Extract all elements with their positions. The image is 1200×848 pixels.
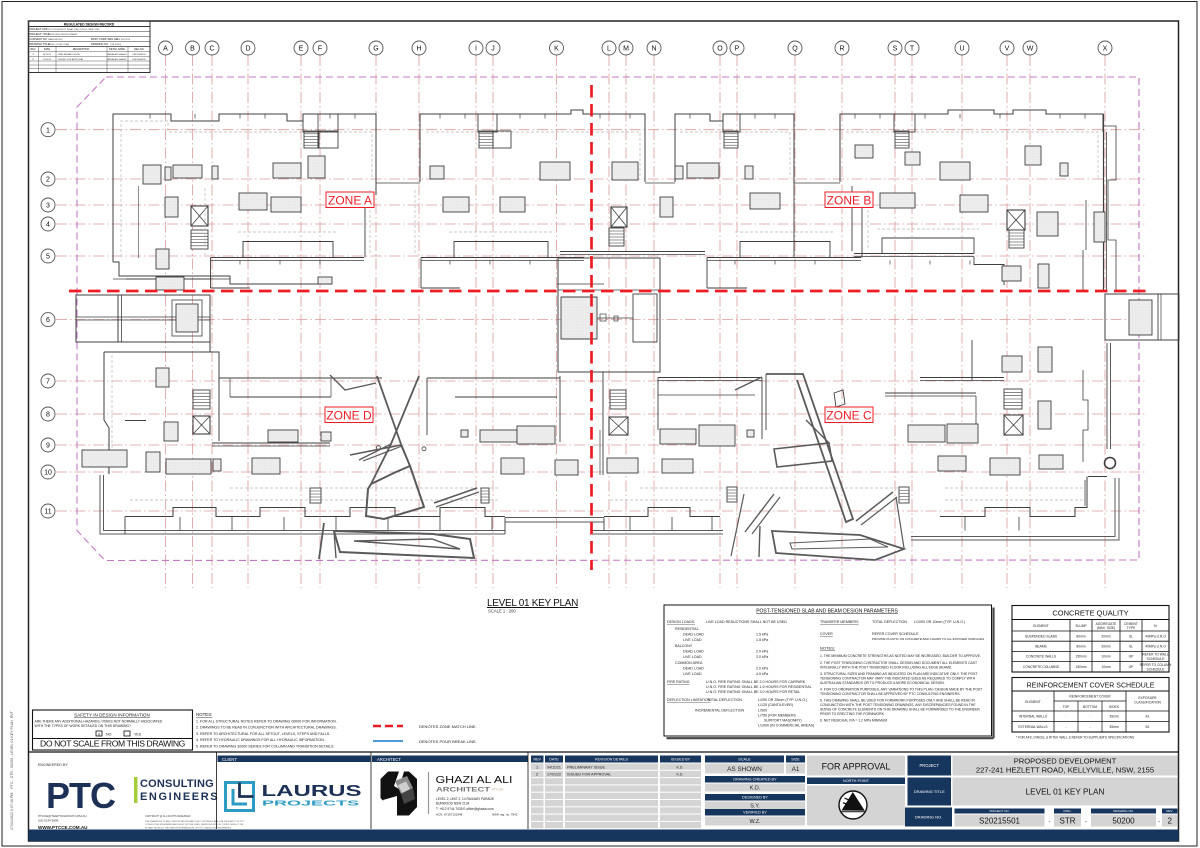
svg-text:LIVE LOAD: LIVE LOAD (683, 672, 702, 676)
svg-text:3. STRUCTURAL SIZES AND FRAMIN: 3. STRUCTURAL SIZES AND FRAMING AS INDIC… (820, 672, 977, 676)
svg-text:INCREMENTAL DEFLECTION: INCREMENTAL DEFLECTION (695, 709, 745, 713)
svg-text:LIVE LOAD REDUCTIONS SHALL NOT: LIVE LOAD REDUCTIONS SHALL NOT BE USED (706, 620, 787, 624)
svg-text:REINFORCEMENT COVER SCHEDULE: REINFORCEMENT COVER SCHEDULE (1027, 683, 1155, 690)
svg-text:SL: SL (1129, 645, 1133, 649)
svg-text:4. FOR CO-ORDINATION PURPOSES,: 4. FOR CO-ORDINATION PURPOSES, ANY VARIA… (820, 688, 982, 692)
svg-text:SAFETY IN DESIGN INFORMATION: SAFETY IN DESIGN INFORMATION (74, 713, 150, 718)
svg-text:SIZING OF CONCRETE ELEMENTS ON: SIZING OF CONCRETE ELEMENTS ON THIS DRAW… (820, 708, 980, 712)
svg-text:3: 3 (46, 203, 50, 210)
svg-text:DESIGNED BY: DESIGNED BY (742, 796, 768, 800)
svg-text:(MAX. SIZE): (MAX. SIZE) (1097, 626, 1116, 630)
svg-text:4.0 kPa: 4.0 kPa (756, 672, 768, 676)
svg-text:L/500: L/500 (758, 709, 767, 713)
svg-text:NORTH POINT: NORTH POINT (843, 779, 870, 783)
svg-text:150mm: 150mm (1076, 655, 1087, 659)
svg-text:T. +612 9744 7035 E.offic: T. +612 9744 7035 E.office@ghazia.com (436, 807, 494, 811)
svg-text:150mm: 150mm (1076, 665, 1087, 669)
svg-text:SCALE: SCALE (738, 757, 751, 761)
svg-text:A: A (163, 46, 168, 53)
svg-text:(02) 9134 9699: (02) 9134 9699 (38, 819, 59, 823)
svg-text:S20215501: S20215501 (979, 817, 1020, 826)
svg-text:ZONE B: ZONE B (827, 193, 872, 207)
svg-text:PRIOR TO ERECTING THE FORMWORK: PRIOR TO ERECTING THE FORMWORK. (820, 712, 885, 716)
svg-text:L/1000 OR 10mm (TYP. U.N.O.): L/1000 OR 10mm (TYP. U.N.O.) (914, 620, 965, 624)
svg-text:U.N.O. FIRE RATING SHALL BE 3.: U.N.O. FIRE RATING SHALL BE 3.0 HOURS FO… (706, 690, 800, 694)
svg-text:7: 7 (46, 379, 50, 386)
svg-text:DEAD LOAD: DEAD LOAD (683, 650, 704, 654)
svg-text:-: - (1065, 715, 1066, 719)
svg-text:A1: A1 (792, 766, 800, 773)
svg-text:L: L (607, 46, 611, 53)
svg-text:* FOR AFS, DINCEL & RITEK WALL: * FOR AFS, DINCEL & RITEK WALL S REFER T… (1016, 736, 1134, 740)
svg-text:5: 5 (46, 254, 50, 261)
svg-text:LAURUS: LAURUS (262, 783, 362, 800)
svg-text:LEVEL 2, UNIT 2, 14 RAILWAY PA: LEVEL 2, UNIT 2, 14 RAILWAY PARADE (436, 797, 494, 801)
svg-text:CONSULTING: CONSULTING (140, 778, 214, 790)
svg-text:-: - (1085, 820, 1087, 826)
svg-text:ARE THERE ANY ADDITIONAL HAZAR: ARE THERE ANY ADDITIONAL HAZARDS / RISKS… (35, 720, 163, 724)
svg-text:NOTES:: NOTES: (196, 712, 212, 717)
svg-text:ISSUED FOR APPROVAL: ISSUED FOR APPROVAL (567, 773, 611, 777)
svg-text:S: S (893, 46, 898, 53)
svg-text:SEP 202 9273: SEP 202 9273 (116, 39, 131, 41)
svg-text:NSW reg. no. 7542: NSW reg. no. 7542 (492, 813, 518, 817)
svg-text:PROPOSED DEVELOPMENT: PROPOSED DEVELOPMENT (48, 34, 78, 36)
svg-text:COPYRIGHT @ ALL RIGHTS RESERVE: COPYRIGHT @ ALL RIGHTS RESERVED (145, 815, 191, 818)
svg-text:W.Z.: W.Z. (749, 819, 760, 825)
svg-text:DESIGN LOADS:: DESIGN LOADS: (667, 620, 695, 624)
svg-text:BEAMS: BEAMS (1035, 645, 1047, 649)
svg-text:G: G (373, 46, 378, 53)
svg-text:B1: B1 (1145, 725, 1149, 729)
svg-text:8: 8 (46, 412, 50, 419)
svg-text:DEFLECTION LIMITATION: DEFLECTION LIMITATION (667, 698, 711, 702)
svg-text:FIRE RATING: FIRE RATING (667, 680, 690, 684)
svg-text:ARCHITECT: ARCHITECT (377, 757, 401, 762)
svg-text:STR 50200: STR 50200 (110, 44, 122, 46)
svg-text:DATE: DATE (549, 757, 559, 761)
svg-text:STR: STR (1060, 817, 1076, 826)
svg-text:REV.: REV. (1166, 809, 1173, 813)
svg-text:TOTAL DEFLECTION: TOTAL DEFLECTION (707, 698, 742, 702)
svg-text:1: 1 (46, 127, 50, 134)
svg-text:DRAWING CREATED BY: DRAWING CREATED BY (733, 778, 777, 782)
svg-text:DRAWING TITLE: DRAWING TITLE (30, 42, 50, 46)
svg-text:2.0 kPa: 2.0 kPa (756, 655, 768, 659)
svg-text:L/750 (FOR MEMBERS: L/750 (FOR MEMBERS (758, 714, 797, 718)
svg-text:ZONE A: ZONE A (328, 193, 372, 207)
svg-text:PROVIDE PLASTIC OR CONCRETE BA: PROVIDE PLASTIC OR CONCRETE BAR CHAIRS T… (872, 637, 984, 641)
svg-text:WWW.PTCCE.COM.AU: WWW.PTCCE.COM.AU (38, 825, 88, 830)
svg-text:PROJECT ADD: PROJECT ADD (30, 27, 48, 31)
svg-text:3. REFER TO ARCHITECTURAL F: 3. REFER TO ARCHITECTURAL FOR ALL SETOUT… (196, 732, 330, 736)
svg-text:6: 6 (46, 317, 50, 324)
svg-text:2: 2 (536, 773, 538, 777)
svg-text:ZONE C: ZONE C (826, 408, 872, 422)
svg-text:DO NOT SCALE FROM THIS DRAWING: DO NOT SCALE FROM THIS DRAWING (40, 739, 186, 749)
svg-text:NO: NO (106, 732, 112, 736)
svg-text:Q: Q (792, 46, 798, 53)
svg-text:4. REFER TO HYDRAULIC DRAWI: 4. REFER TO HYDRAULIC DRAWINGS FOR ALL H… (196, 738, 325, 742)
svg-text:O: O (717, 46, 723, 53)
svg-text:SL: SL (1129, 634, 1133, 638)
svg-text:U.N.O. FIRE RATING SHALL BE 2.: U.N.O. FIRE RATING SHALL BE 2.0 HOURS FO… (706, 680, 806, 684)
svg-text:P: P (735, 46, 740, 53)
svg-text:INTEGRALLY WITH THE POST TENSI: INTEGRALLY WITH THE POST TENSIONED FLOOR… (820, 666, 952, 670)
svg-text:227-241 HEZLETT ROAD, KELLYVIL: 227-241 HEZLETT ROAD, KELLYVILLE, NSW, 2… (976, 766, 1154, 775)
svg-text:THE DRAWINGS, PLANS, SPECIFICA: THE DRAWINGS, PLANS, SPECIFICATIONS AND … (145, 820, 245, 823)
svg-text:ENGINEERED BY:: ENGINEERED BY: (38, 763, 68, 767)
svg-text:SUPPORT MASONRY): SUPPORT MASONRY) (764, 719, 802, 723)
svg-text:W: W (1027, 46, 1034, 53)
svg-text:40MPa U.N.O: 40MPa U.N.O (1145, 634, 1166, 638)
svg-text:ISSUED FOR APPROVAL: ISSUED FOR APPROVAL (58, 58, 84, 61)
svg-text:2: 2 (46, 177, 50, 184)
svg-text:EXPOSURE: EXPOSURE (1138, 696, 1157, 700)
svg-text:REFER COVER SCHEDULE: REFER COVER SCHEDULE (872, 632, 919, 636)
svg-text:10mm: 10mm (1101, 665, 1110, 669)
svg-text:E: E (299, 46, 304, 53)
svg-text:CONJUNCTION WITH THE POST TENS: CONJUNCTION WITH THE POST TENSIONING DRA… (820, 703, 976, 707)
svg-text:REVISION DETAILS: REVISION DETAILS (595, 757, 628, 761)
svg-text:DEP0008304: DEP0008304 (132, 54, 146, 56)
svg-text:CONSULTING ENGINEERS AND MUST: CONSULTING ENGINEERS AND MUST NOT BE USE… (145, 823, 244, 826)
svg-text:PROPOSED DEVELOPMENT: PROPOSED DEVELOPMENT (1014, 757, 1117, 766)
svg-text:SIDES: SIDES (1109, 705, 1120, 709)
svg-text:DA91829/13JP: DA91829/13JP (48, 38, 63, 41)
svg-text:LIVE LOAD: LIVE LOAD (683, 638, 702, 642)
svg-text:35mm: 35mm (1109, 725, 1118, 729)
svg-text:-: - (1065, 725, 1066, 729)
svg-text:L/250 OR 25mm (TYP. U.N.O.): L/250 OR 25mm (TYP. U.N.O.) (758, 698, 807, 702)
svg-text:LEVEL 01 KEY PLAN: LEVEL 01 KEY PLAN (487, 598, 578, 609)
svg-text:AS SHOWN: AS SHOWN (727, 766, 762, 773)
svg-text:4: 4 (46, 222, 50, 229)
svg-text:ARCHITECT: ARCHITECT (436, 787, 490, 794)
svg-text:2.0 kPa: 2.0 kPa (756, 650, 768, 654)
svg-text:K.D.: K.D. (677, 765, 684, 769)
svg-text:CONCRETE QUALITY: CONCRETE QUALITY (1052, 609, 1128, 618)
svg-text:RESIDENTIAL: RESIDENTIAL (675, 627, 699, 631)
svg-text:ELEMENT: ELEMENT (1025, 700, 1041, 704)
svg-text:YES: YES (134, 732, 142, 736)
svg-text:1.5 kPa: 1.5 kPa (756, 638, 768, 642)
svg-text:DEAD LOAD: DEAD LOAD (683, 633, 704, 637)
svg-text:CLASSIFICATION: CLASSIFICATION (1134, 701, 1161, 705)
svg-text:PRELIMINARY ISSUE: PRELIMINARY ISSUE (567, 765, 606, 769)
svg-text:M: M (623, 46, 629, 53)
svg-text:DESCRIPTION: DESCRIPTION (73, 48, 90, 51)
svg-text:PROJECT: PROJECT (919, 763, 939, 768)
svg-text:DRAWING NO.: DRAWING NO. (915, 814, 942, 819)
svg-text:04/11/21: 04/11/21 (43, 54, 52, 56)
svg-text:REV: REV (534, 757, 542, 761)
svg-text:227-241 HEZLETT ROAD, KELLYVIL: 227-241 HEZLETT ROAD, KELLYVILLE, NSW, 2… (48, 28, 100, 31)
svg-text:SLUMP: SLUMP (1075, 624, 1087, 628)
svg-text:BODY CORP. REG NO: BODY CORP. REG NO (91, 37, 118, 41)
svg-text:5. THIS DRAWING SHALL BE USED: 5. THIS DRAWING SHALL BE USED FOR FORMWO… (820, 699, 975, 703)
svg-text:K.D.: K.D. (750, 786, 760, 792)
svg-text:2. THE POST TENSIONING CONTRAC: 2. THE POST TENSIONING CONTRACTOR SHALL … (820, 661, 977, 665)
svg-text:TYPE: TYPE (1127, 626, 1136, 630)
svg-text:GP: GP (1129, 665, 1135, 669)
svg-text:D: D (245, 46, 250, 53)
svg-text:TENSIONING CONTRACTOR MAY VARY: TENSIONING CONTRACTOR MAY VARY THE INDIC… (820, 677, 976, 681)
svg-text:TOTAL DEFLECTION: TOTAL DEFLECTION (872, 620, 907, 624)
svg-text:N: N (651, 46, 656, 53)
svg-text:DEP0008304: DEP0008304 (132, 59, 146, 61)
svg-text:C: C (209, 46, 214, 53)
svg-text:ELEMENT: ELEMENT (1033, 624, 1049, 628)
svg-text:PROJECT NO.: PROJECT NO. (989, 809, 1009, 813)
svg-text:REV: REV (31, 48, 36, 51)
svg-text:REINFORCEMENT COVER: REINFORCEMENT COVER (1069, 695, 1111, 699)
svg-text:X: X (1103, 46, 1108, 53)
svg-text:40MPa U.N.O: 40MPa U.N.O (1145, 645, 1166, 649)
svg-text:NOTES:: NOTES: (820, 646, 835, 651)
svg-text:T: T (910, 46, 915, 53)
svg-text:DISC.: DISC. (1063, 809, 1071, 813)
svg-text:80mm: 80mm (1076, 634, 1085, 638)
svg-text:-: - (1089, 715, 1090, 719)
svg-text:INTERNAL WALLS: INTERNAL WALLS (1019, 715, 1048, 719)
svg-text:80mm: 80mm (1076, 645, 1085, 649)
svg-text:CONCRETE COLUMNS: CONCRETE COLUMNS (1023, 665, 1060, 669)
svg-text:PROJECTS: PROJECTS (262, 801, 360, 808)
svg-text:-: - (1158, 820, 1160, 826)
svg-text:COMMON AREA: COMMON AREA (675, 661, 703, 665)
svg-text:F: F (318, 46, 322, 53)
svg-text:ENGINEERS: ENGINEERS (140, 791, 219, 803)
svg-text:H: H (416, 46, 421, 53)
svg-text:1: 1 (536, 765, 538, 769)
svg-text:1. FOR ALL STRUCTURAL NOTES: 1. FOR ALL STRUCTURAL NOTES REFER TO DRA… (196, 720, 337, 724)
svg-text:SUSPENDED SLABS: SUSPENDED SLABS (1025, 634, 1058, 638)
svg-text:ARSALAN SHAHID: ARSALAN SHAHID (107, 53, 127, 56)
svg-text:FOR APPROVAL: FOR APPROVAL (822, 762, 891, 772)
svg-text:TRANSFER MEMBERS: TRANSFER MEMBERS (820, 620, 859, 624)
svg-text:BALCONY: BALCONY (675, 644, 693, 648)
svg-text:DENOTES ZONE MATCH LINE.: DENOTES ZONE MATCH LINE. (419, 724, 477, 729)
svg-text:ZONE D: ZONE D (326, 408, 372, 422)
svg-text:REFER TO WALL: REFER TO WALL (1142, 653, 1168, 657)
svg-text:SCHEDULE: SCHEDULE (1147, 657, 1166, 661)
svg-text:2: 2 (1167, 817, 1172, 826)
svg-text:AUSTRALIAN STANDARDS OR TO PRO: AUSTRALIAN STANDARDS OR TO PRODUCE A MOR… (820, 681, 945, 685)
svg-text:f'c: f'c (1154, 624, 1158, 628)
svg-text:GHAZI AL ALI: GHAZI AL ALI (436, 774, 513, 786)
svg-text:SCALE 1 : 200: SCALE 1 : 200 (488, 609, 516, 614)
svg-text:20mm: 20mm (1101, 645, 1110, 649)
svg-text:L/1000 (IN COMMERCIAL AREAS): L/1000 (IN COMMERCIAL AREAS) (758, 724, 814, 728)
svg-text:R: R (839, 46, 844, 53)
svg-text:DETAIL NAME: DETAIL NAME (109, 48, 125, 51)
svg-text:LEVEL 01 KEY PLAN: LEVEL 01 KEY PLAN (1026, 788, 1105, 797)
svg-text:COVER: COVER (820, 632, 833, 636)
svg-text:WITH THE TYPES OF WORK DETAILE: WITH THE TYPES OF WORK DETAILED ON THIS … (35, 724, 132, 728)
svg-text:A1: A1 (1145, 715, 1149, 719)
svg-text:17/01/22: 17/01/22 (547, 773, 561, 777)
svg-text:GP: GP (1129, 655, 1135, 659)
svg-text:2. DRAWINGS TO BE READ IN C: 2. DRAWINGS TO BE READ IN CONJUNCTION WI… (196, 726, 337, 730)
svg-text:CLIENT: CLIENT (222, 757, 237, 762)
svg-text:PTC: PTC (46, 775, 116, 816)
svg-text:35mm: 35mm (1109, 715, 1118, 719)
svg-text:LIVE LOAD: LIVE LOAD (683, 655, 702, 659)
svg-text:BURWOOD NSW 2134: BURWOOD NSW 2134 (436, 802, 469, 806)
svg-text:DRAWING NO: DRAWING NO (91, 42, 108, 46)
svg-text:CONCRETE WALLS: CONCRETE WALLS (1026, 655, 1057, 659)
svg-text:PTY LTD: PTY LTD (492, 788, 503, 792)
svg-text:CONSENT NO: CONSENT NO (30, 37, 47, 41)
svg-text:B: B (190, 46, 195, 53)
svg-text:U.N.O. FIRE RATING SHALL BE 1.: U.N.O. FIRE RATING SHALL BE 1.5 HOURS FO… (706, 685, 812, 689)
svg-text:10mm: 10mm (1101, 655, 1110, 659)
svg-text:TOP: TOP (1063, 705, 1071, 709)
svg-text:I: I (475, 46, 477, 53)
svg-text:6. NET RESIDUAL P/A = 1.2 MPa: 6. NET RESIDUAL P/A = 1.2 MPa MINIMUM (820, 719, 887, 723)
svg-text:S.Y.: S.Y. (750, 804, 760, 810)
svg-text:11: 11 (44, 509, 51, 516)
svg-text:DRAWING TITLE: DRAWING TITLE (914, 789, 945, 794)
svg-text:VERIFIED BY: VERIFIED BY (743, 811, 767, 815)
svg-text:17/01/2022 6:07:46 PM PTC -: 17/01/2022 6:07:46 PM PTC - STR - 50200 … (10, 710, 14, 830)
svg-text:-: - (1049, 820, 1051, 826)
svg-text:BOTTOM: BOTTOM (1083, 705, 1097, 709)
svg-text:REGULATED DESIGN RECORD: REGULATED DESIGN RECORD (64, 22, 115, 26)
svg-text:PRELIMINARY ISSUE: PRELIMINARY ISSUE (58, 53, 80, 56)
svg-text:PTCCE@THEPTCGROUP.COM.AU: PTCCE@THEPTCGROUP.COM.AU (38, 814, 87, 818)
svg-text:J: J (491, 46, 495, 53)
svg-text:K: K (554, 46, 559, 53)
svg-text:EXTERNAL WALLS: EXTERNAL WALLS (1018, 725, 1048, 729)
svg-text:L/125 (CANTILEVER): L/125 (CANTILEVER) (758, 703, 793, 707)
svg-text:U: U (959, 46, 964, 53)
svg-text:10: 10 (44, 470, 52, 477)
svg-text:PROJECT TITLE: PROJECT TITLE (30, 32, 50, 36)
svg-text:04/11/21: 04/11/21 (547, 765, 561, 769)
svg-text:TENSIONING CONTRACTOR SHALL BE: TENSIONING CONTRACTOR SHALL BE APPROVED … (820, 692, 960, 696)
svg-text:DEAD LOAD: DEAD LOAD (683, 667, 704, 671)
svg-text:9: 9 (46, 443, 50, 450)
svg-text:ISSUED BY: ISSUED BY (671, 757, 691, 761)
svg-text:50200: 50200 (1112, 817, 1135, 826)
svg-text:1.5 kPa: 1.5 kPa (756, 633, 768, 637)
svg-text:20mm: 20mm (1101, 634, 1110, 638)
svg-text:17/01/22: 17/01/22 (43, 59, 52, 61)
svg-text:REFER TO COLUMN: REFER TO COLUMN (1140, 663, 1172, 667)
svg-text:POST-TENSIONED SLAB AND BEAM D: POST-TENSIONED SLAB AND BEAM DESIGN PARA… (756, 609, 898, 615)
svg-text:V: V (1005, 46, 1010, 53)
svg-text:REG NO: REG NO (134, 48, 144, 51)
svg-text:DRAWING NO.: DRAWING NO. (1113, 809, 1134, 813)
svg-text:ACN. 67167131948: ACN. 67167131948 (436, 813, 463, 817)
svg-text:ARSALAN SHAHID: ARSALAN SHAHID (107, 58, 127, 61)
svg-text:X: X (98, 731, 101, 736)
svg-text:K.D.: K.D. (677, 773, 684, 777)
svg-text:DATE: DATE (44, 48, 51, 51)
svg-text:2.0 kPa: 2.0 kPa (756, 667, 768, 671)
svg-text:5. REFER TO DRAWING 30000 S: 5. REFER TO DRAWING 30000 SERIES FOR COL… (196, 744, 334, 748)
svg-text:SIZE: SIZE (791, 757, 800, 761)
svg-text:1. THE MINIMUM CONCRETE STRENG: 1. THE MINIMUM CONCRETE STRENGTHS AS NOT… (820, 654, 981, 658)
svg-text:SCHEDULE: SCHEDULE (1147, 667, 1166, 671)
svg-text:LEVEL 01 KEY PLAN: LEVEL 01 KEY PLAN (48, 43, 69, 46)
svg-text:-: - (1089, 725, 1090, 729)
svg-text:DENOTES POUR BREAK LINE.: DENOTES POUR BREAK LINE. (419, 739, 477, 744)
svg-text:IN PART WITHOUT THE WRITTEN PE: IN PART WITHOUT THE WRITTEN PERMISSION O… (145, 826, 232, 829)
